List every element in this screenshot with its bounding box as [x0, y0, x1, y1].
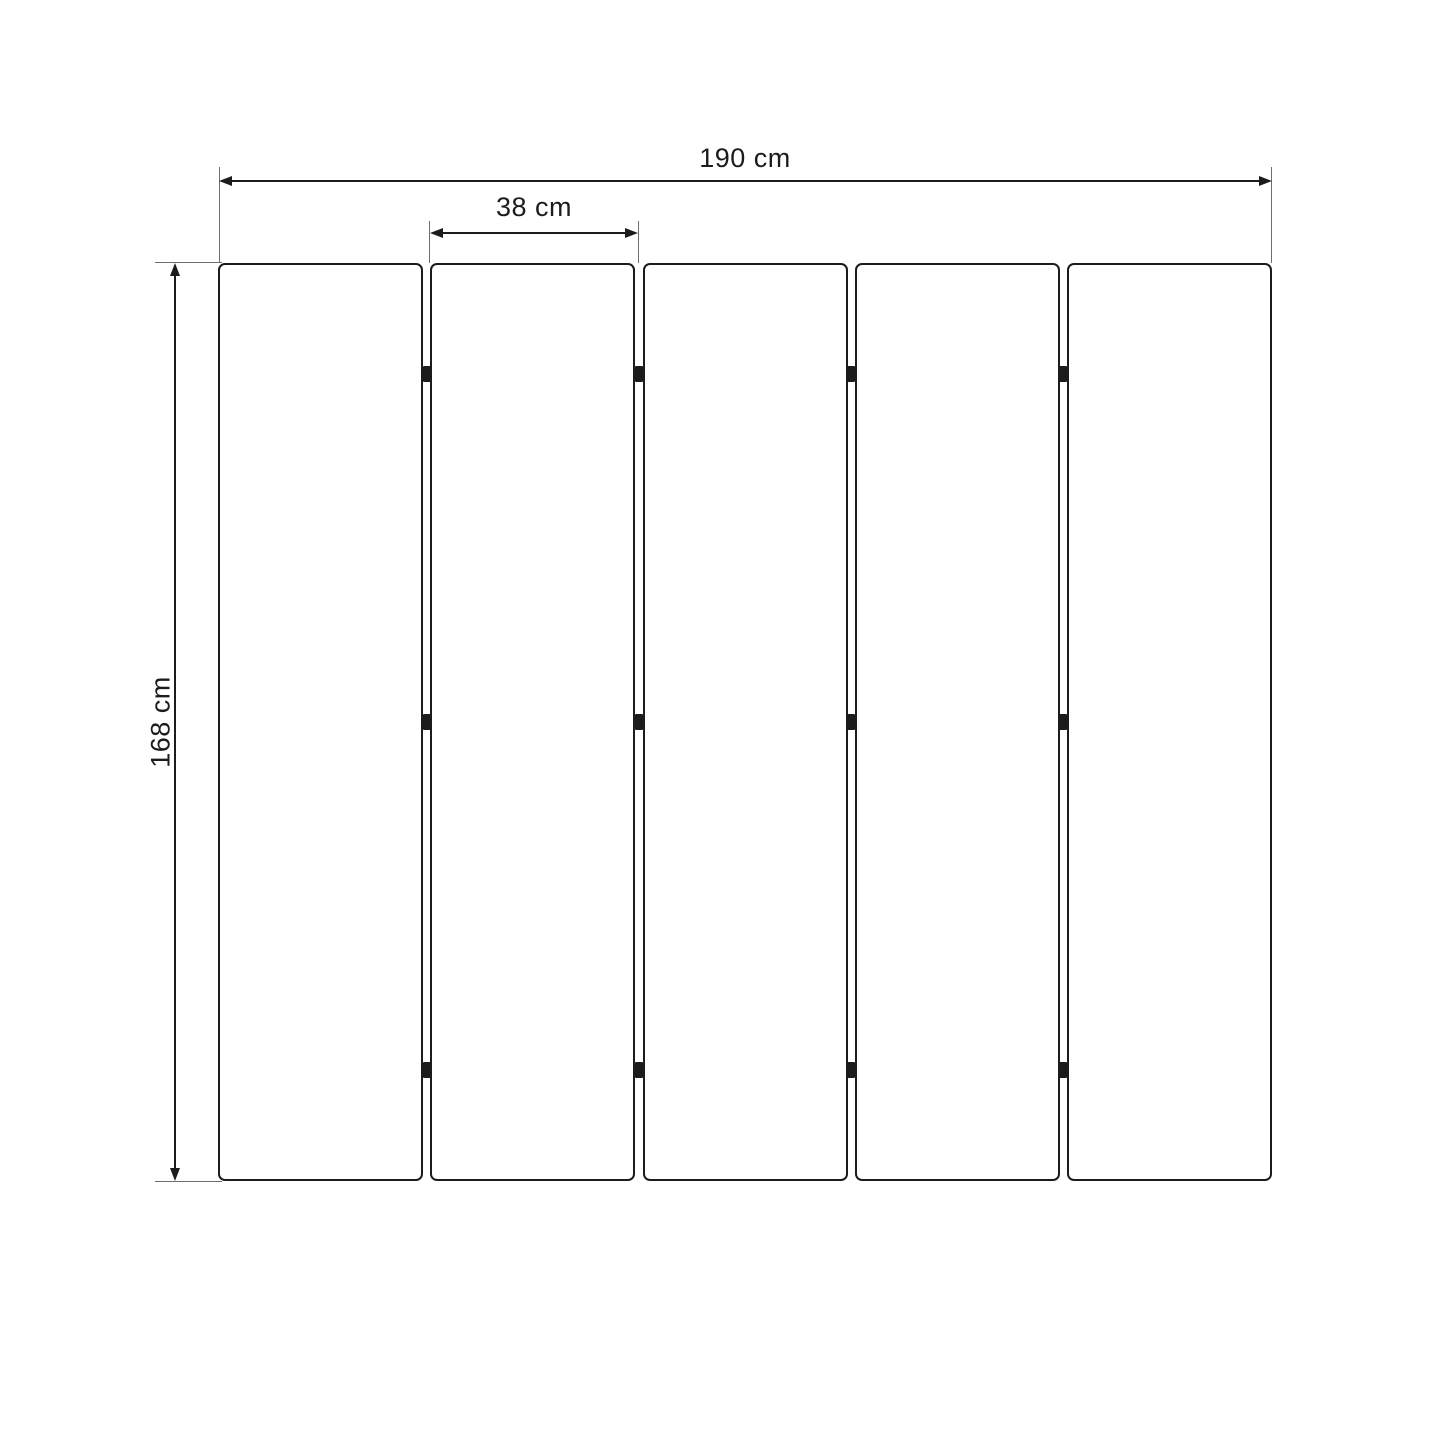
arrowhead-up-icon — [170, 263, 180, 276]
arrowhead-right-icon — [1259, 176, 1272, 186]
hinge-mark — [423, 1062, 431, 1078]
hinge-mark — [847, 714, 855, 730]
extension-line — [155, 262, 222, 263]
hinge-mark — [1059, 714, 1067, 730]
panel-5 — [1067, 263, 1272, 1181]
height-label: 168 cm — [146, 676, 177, 768]
panel-3 — [643, 263, 848, 1181]
arrowhead-left-icon — [430, 228, 443, 238]
total-width-label: 190 cm — [699, 143, 791, 174]
hinge-mark — [1059, 366, 1067, 382]
hinge-mark — [847, 1062, 855, 1078]
hinge-mark — [635, 1062, 643, 1078]
arrowhead-down-icon — [170, 1168, 180, 1181]
hinge-mark — [423, 366, 431, 382]
dimension-diagram: 190 cm 38 cm 168 cm — [0, 0, 1445, 1445]
arrowhead-right-icon — [625, 228, 638, 238]
hinge-mark — [635, 714, 643, 730]
panel-2 — [430, 263, 635, 1181]
panel-width-label: 38 cm — [496, 192, 572, 223]
panel-4 — [855, 263, 1060, 1181]
panel-row — [218, 263, 1272, 1181]
arrowhead-left-icon — [219, 176, 232, 186]
extension-line — [638, 221, 639, 263]
hinge-mark — [423, 714, 431, 730]
dimension-line — [440, 232, 628, 234]
dimension-line — [229, 180, 1263, 182]
extension-line — [155, 1181, 222, 1182]
hinge-mark — [1059, 1062, 1067, 1078]
hinge-mark — [847, 366, 855, 382]
hinge-mark — [635, 366, 643, 382]
panel-1 — [218, 263, 423, 1181]
